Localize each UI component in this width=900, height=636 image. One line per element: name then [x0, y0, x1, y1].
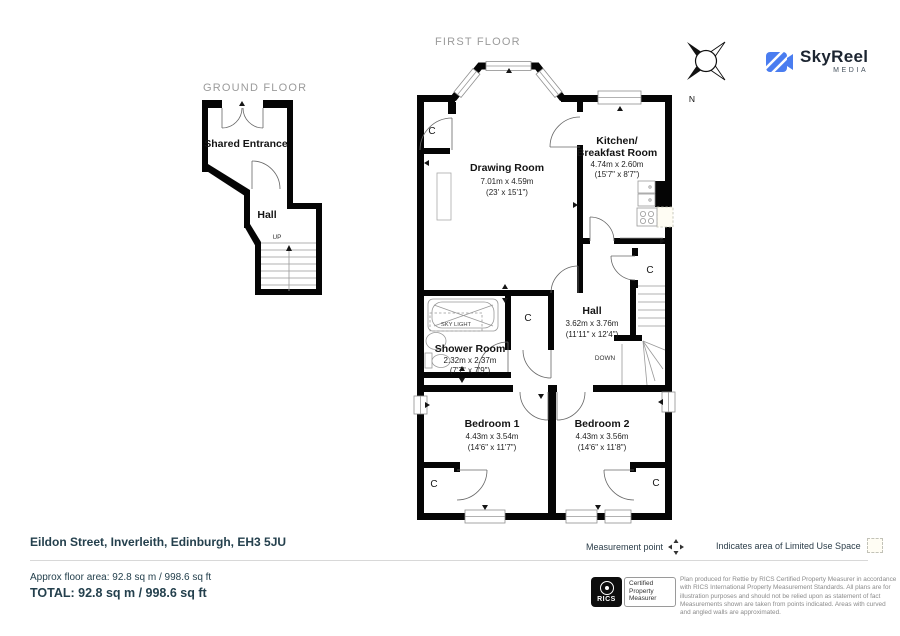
measurement-point-label: Measurement point [586, 542, 663, 552]
disclaimer-text: Plan produced for Rettie by RICS Certifi… [680, 576, 898, 617]
compass-rose: N [687, 42, 725, 104]
approx-floor-area: Approx floor area: 92.8 sq m / 998.6 sq … [30, 572, 211, 583]
first-floor-plan: SKY LIGHT [414, 62, 675, 524]
up-label: UP [273, 234, 282, 241]
shower-room-name: Shower Room [435, 343, 506, 355]
hall-metric: 3.62m x 3.76m [566, 319, 619, 328]
bedroom2-metric: 4.43m x 3.56m [576, 432, 629, 441]
brand-name: SkyReel [800, 47, 868, 67]
ground-floor-stairs [261, 243, 316, 291]
kitchen-window [598, 91, 641, 111]
first-floor-windows [414, 392, 675, 523]
bay-window [453, 62, 563, 100]
bedroom1-name: Bedroom 1 [465, 418, 520, 430]
measurement-point-icon [667, 538, 685, 556]
cupboard-label: C [652, 478, 659, 489]
brand-subtitle: MEDIA [833, 67, 868, 74]
drawing-room-metric: 7.01m x 4.59m [481, 177, 534, 186]
certified-line: Measurer [629, 595, 675, 603]
measure-arrow [239, 101, 245, 106]
drawing-room-recess [437, 173, 451, 220]
drawing-room-name: Drawing Room [470, 162, 544, 174]
bedroom1-metric: 4.43m x 3.54m [466, 432, 519, 441]
kitchen-name-2: Breakfast Room [577, 147, 658, 159]
hall-imperial: (11'11" x 12'4") [566, 330, 619, 339]
ground-hall-label: Hall [257, 209, 276, 221]
bedroom2-name: Bedroom 2 [575, 418, 630, 430]
floorplan-page: FIRST FLOOR GROUND FLOOR [0, 0, 900, 636]
drawing-room-imperial: (23' x 15'1") [486, 188, 528, 197]
cupboard-label: C [428, 126, 435, 137]
footer-divider [30, 560, 868, 561]
skyreel-camera-icon [764, 47, 794, 77]
legend-limited-use: Indicates area of Limited Use Space [716, 538, 883, 553]
rics-acronym: RICS [597, 596, 616, 603]
hall-name: Hall [582, 305, 601, 317]
bedroom2-imperial: (14'6" x 11'8") [578, 443, 627, 452]
cupboard-label: C [430, 479, 437, 490]
shared-entrance-label: Shared Entrance [204, 138, 288, 150]
ground-floor-walls [202, 100, 322, 295]
skyreel-logo: SkyReel MEDIA [764, 47, 868, 77]
rics-certification: RICS Certified Property Measurer [591, 577, 676, 607]
limited-use-swatch [867, 538, 883, 553]
kitchen-name-1: Kitchen/ [596, 135, 638, 147]
kitchen-imperial: (15'7" x 8'7") [595, 170, 640, 179]
sky-light-label: SKY LIGHT [441, 322, 472, 328]
certified-property-measurer-badge: Certified Property Measurer [624, 577, 676, 607]
shower-room-imperial: (7'7" x 7'9") [450, 366, 491, 375]
kitchen-metric: 4.74m x 2.60m [591, 160, 644, 169]
rics-logo: RICS [591, 577, 622, 607]
limited-use-label: Indicates area of Limited Use Space [716, 541, 861, 551]
entrance-double-door [222, 108, 263, 128]
compass-north-label: N [689, 94, 695, 104]
ground-floor-title: GROUND FLOOR [203, 82, 307, 94]
certified-line: Certified [629, 580, 675, 588]
first-floor-title: FIRST FLOOR [435, 36, 521, 48]
cupboard-label: C [646, 265, 653, 276]
ground-floor-plan: Shared Entrance Hall UP [202, 100, 322, 295]
legend-measurement-point: Measurement point [586, 538, 685, 556]
cupboard-label: C [524, 313, 531, 324]
bedroom1-imperial: (14'6" x 11'7") [468, 443, 517, 452]
total-floor-area: TOTAL: 92.8 sq m / 998.6 sq ft [30, 586, 207, 600]
shower-room-metric: 2.32m x 2.37m [444, 356, 497, 365]
down-label: DOWN [595, 355, 616, 362]
hall-door [252, 161, 280, 189]
limited-use-area [657, 207, 673, 227]
rics-crest-icon [600, 581, 614, 595]
certified-line: Property [629, 588, 675, 596]
property-address: Eildon Street, Inverleith, Edinburgh, EH… [30, 535, 286, 549]
